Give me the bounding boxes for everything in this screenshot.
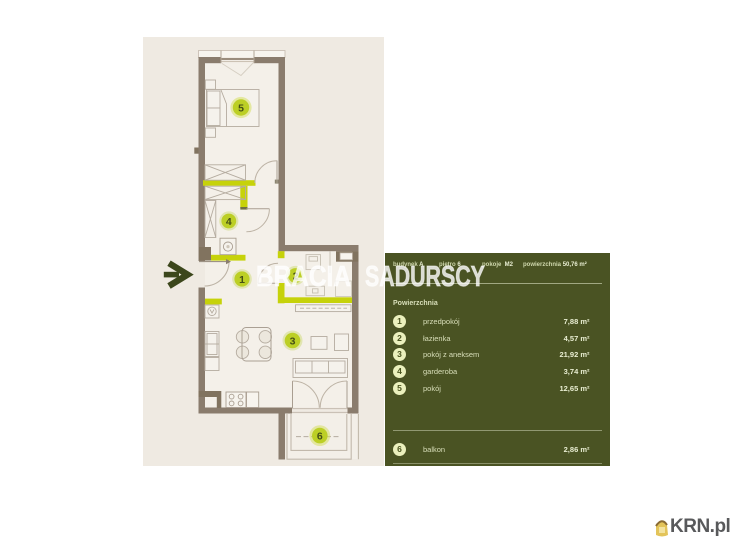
- svg-text:1: 1: [239, 274, 245, 286]
- svg-text:4: 4: [226, 216, 232, 228]
- svg-text:5: 5: [238, 102, 244, 114]
- svg-text:6: 6: [317, 431, 323, 443]
- svg-text:3: 3: [290, 335, 296, 347]
